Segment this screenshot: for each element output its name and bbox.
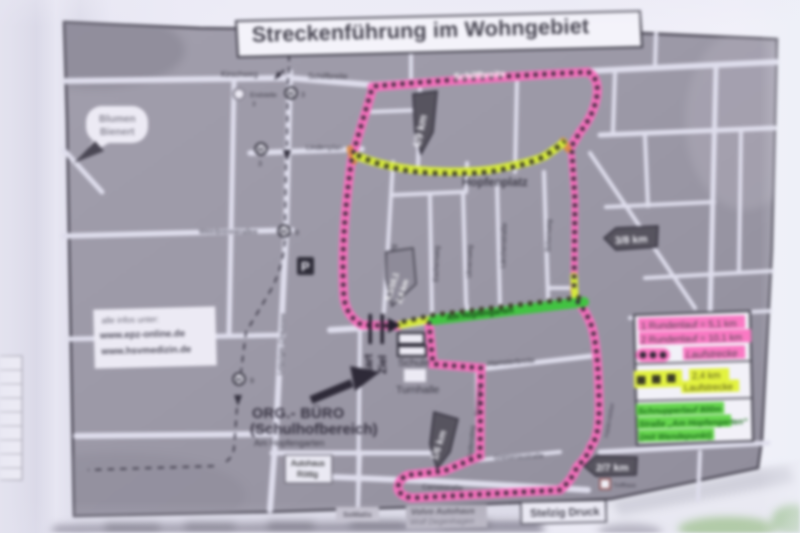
svg-text:3/8 km: 3/8 km bbox=[615, 233, 648, 247]
svg-text:Lindenplan: Lindenplan bbox=[306, 143, 343, 152]
svg-text:2/7 km: 2/7 km bbox=[596, 462, 629, 474]
svg-text:Autohaus: Autohaus bbox=[291, 459, 325, 468]
svg-text:Ulmenweg: Ulmenweg bbox=[466, 245, 474, 278]
svg-text:SoMatis: SoMatis bbox=[343, 510, 372, 519]
svg-text:9: 9 bbox=[250, 378, 254, 385]
svg-text:H: H bbox=[236, 375, 242, 385]
svg-text:Kirschweg: Kirschweg bbox=[221, 70, 258, 79]
svg-text:Ziel: Ziel bbox=[377, 355, 389, 374]
svg-text:3: 3 bbox=[301, 92, 305, 99]
svg-text:P: P bbox=[301, 259, 310, 274]
svg-text:Endstelle: Endstelle bbox=[250, 92, 277, 99]
svg-text:H: H bbox=[281, 227, 287, 237]
svg-text:Hopfenplatz: Hopfenplatz bbox=[462, 177, 528, 189]
svg-text:Röttig: Röttig bbox=[297, 470, 318, 479]
svg-text:Treffhaus: Treffhaus bbox=[613, 483, 636, 489]
svg-text:H: H bbox=[288, 89, 294, 99]
svg-text:Volvo Autohaus: Volvo Autohaus bbox=[411, 505, 476, 516]
svg-text:Laufstrecke: Laufstrecke bbox=[684, 382, 733, 394]
svg-text:Eschenweg: Eschenweg bbox=[433, 246, 441, 283]
svg-text:Birkenweg: Birkenweg bbox=[545, 219, 553, 252]
svg-text:(Schulhofbereich): (Schulhofbereich) bbox=[250, 421, 378, 438]
svg-text:Bienert: Bienert bbox=[100, 127, 135, 138]
svg-text:www.epz-online.de: www.epz-online.de bbox=[99, 328, 185, 341]
svg-text:Turnhalle: Turnhalle bbox=[396, 384, 440, 396]
svg-text:alle infos unter:: alle infos unter: bbox=[101, 314, 159, 326]
svg-text:3: 3 bbox=[258, 161, 262, 168]
svg-text:Stelzig Druck: Stelzig Druck bbox=[530, 506, 601, 520]
svg-text:ORG.- BÜRO: ORG.- BÜRO bbox=[252, 405, 345, 422]
svg-text:Weinbrennerallee: Weinbrennerallee bbox=[199, 227, 258, 236]
svg-text:Carnotstraße: Carnotstraße bbox=[422, 484, 463, 492]
svg-text:Schilfbreite: Schilfbreite bbox=[308, 72, 348, 81]
svg-text:9: 9 bbox=[295, 230, 299, 237]
svg-text:Blumen: Blumen bbox=[99, 114, 136, 125]
svg-text:Am Hopfengarten: Am Hopfengarten bbox=[254, 438, 325, 448]
svg-text:Schule: Schule bbox=[398, 357, 430, 369]
svg-text:Wolf Degenhagen: Wolf Degenhagen bbox=[410, 517, 475, 527]
svg-text:3: 3 bbox=[252, 101, 256, 108]
svg-text:Laufstrecke: Laufstrecke bbox=[686, 349, 738, 361]
svg-text:H: H bbox=[258, 145, 264, 155]
svg-text:(mit Wendepunkt): (mit Wendepunkt) bbox=[640, 430, 712, 442]
